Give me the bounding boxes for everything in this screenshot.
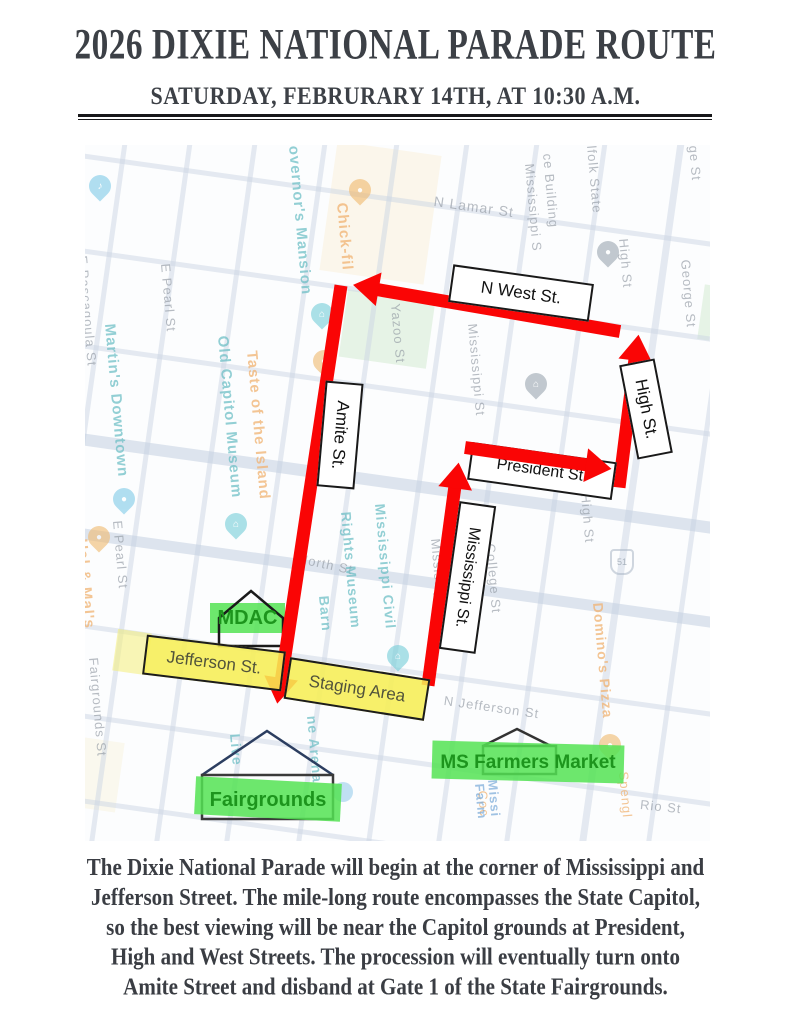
road-line (85, 794, 710, 841)
page-title: 2026 DIXIE NATIONAL PARADE ROUTE (8, 20, 783, 72)
map-label-n-lamar: N Lamar St (433, 193, 515, 220)
building-pin-icon: ● (592, 236, 623, 267)
map-label-hal-and-mals: Hal & Mal's (85, 538, 98, 630)
map-green-strip (697, 284, 710, 340)
footer-line: so the best viewing will be near the Cap… (0, 912, 791, 942)
fairgrounds-label: Fairgrounds (195, 784, 341, 816)
header-divider (78, 114, 712, 120)
map-label-farmers-2: Farm (472, 783, 490, 820)
footer-line: The Dixie National Parade will begin at … (0, 852, 791, 882)
parade-route-map: N Lamar St E Pascagoula St E Pearl St E … (85, 145, 710, 841)
music-pin-icon: ♪ (85, 170, 116, 201)
map-label-high-st-mid: High St (578, 493, 597, 544)
page-subtitle: SATURDAY, FEBRURARY 14TH, AT 10:30 A.M. (0, 82, 791, 110)
footer-line: High and West Streets. The procession wi… (0, 942, 791, 972)
amite-st-label: Amite St. (327, 400, 353, 470)
arrowhead-icon (583, 447, 614, 484)
map-label-george-partial: ge St (686, 145, 704, 182)
footer-line: Jefferson Street. The mile-long route en… (0, 882, 791, 912)
highway-51-shield-icon: 51 (610, 549, 634, 575)
jefferson-st-label: Jefferson St. (166, 647, 263, 678)
staging-area-label: Staging Area (307, 672, 406, 707)
mdac-label: MDAC (210, 604, 285, 632)
map-label-barn: Barn (316, 595, 335, 632)
map-label-e-pearl-lower: E Pearl St (110, 520, 131, 590)
n-west-st-label: N West St. (480, 277, 563, 308)
restaurant-pin-icon: ● (344, 174, 375, 205)
route-description: The Dixie National Parade will begin at … (0, 852, 791, 1002)
museum-pin-icon: ⌂ (220, 508, 251, 539)
map-label-martins-downtown: Martin's Downtown (101, 323, 131, 478)
poi-pin-icon: ● (108, 483, 139, 514)
high-st-label: High St. (630, 377, 661, 440)
capitol-pin-icon: ⌂ (520, 368, 551, 399)
farmers-market-label: MS Farmers Market (432, 747, 624, 779)
arrowhead-icon (350, 268, 381, 306)
mississippi-st-label: Mississippi St. (452, 526, 484, 629)
map-label-e-pascagoula: E Pascagoula St (85, 255, 100, 367)
museum-pin-icon: ⌂ (382, 640, 413, 671)
map-label-rio-st: Rio St (639, 797, 682, 816)
map-label-civil-rights-1: Mississippi Civil (372, 503, 399, 630)
road-line (642, 145, 710, 841)
arrowhead-icon (618, 332, 655, 362)
parade-flyer: 2026 DIXIE NATIONAL PARADE ROUTE SATURDA… (0, 0, 791, 1024)
footer-line: Amite Street and disband at Gate 1 of th… (0, 972, 791, 1002)
map-label-george-st: George St (678, 259, 699, 328)
route-arrow-amite-st (271, 284, 347, 704)
